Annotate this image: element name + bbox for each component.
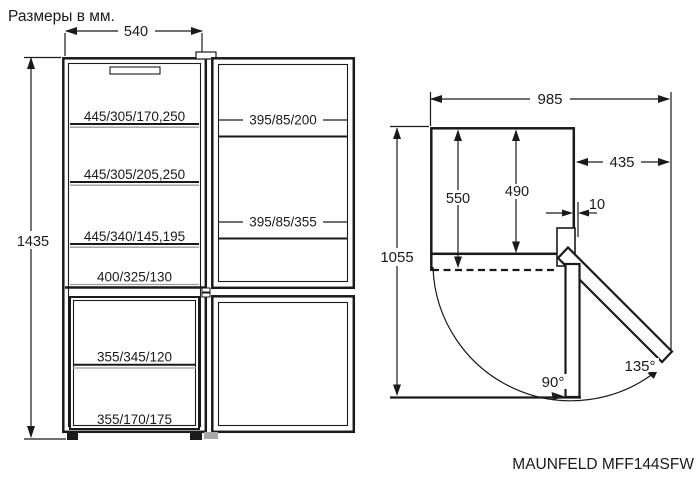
arrowhead-left — [430, 95, 442, 103]
page-title: Размеры в мм. — [8, 8, 115, 25]
front-view-diagram: 540 1435 445/305/170,250 — [11, 22, 354, 440]
fridge-cabinet: 445/305/170,250 445/305/205,250 445/340/… — [63, 52, 216, 440]
arrowhead-up — [27, 57, 35, 69]
door-foot — [204, 432, 218, 439]
freezer-shelf-label: 355/170/175 — [97, 412, 172, 427]
middle-hinge — [202, 293, 210, 297]
angle-90-label: 90° — [542, 374, 565, 391]
arrowhead-right — [658, 158, 670, 166]
arrowhead-right — [658, 95, 670, 103]
dimension-depth-1055: 1055 — [374, 127, 429, 397]
arrowhead-left — [578, 210, 589, 217]
fridge-door-liner — [219, 65, 348, 282]
shelf-size-label: 445/305/170,250 — [84, 109, 185, 124]
door-shelf-label: 395/85/200 — [249, 113, 317, 128]
angle-135-label: 135° — [624, 358, 655, 375]
arrowhead-down — [393, 385, 401, 397]
dimension-clearance-435: 435 — [576, 153, 670, 171]
arrowhead-up — [393, 128, 401, 140]
diagram-canvas: Размеры в мм. 540 1435 — [0, 0, 700, 477]
arrowhead-down — [27, 426, 35, 438]
height-label: 1435 — [17, 234, 49, 250]
lamp-housing — [110, 67, 160, 74]
clearance-label: 435 — [609, 154, 634, 171]
freezer-shelf-label: 355/345/120 — [97, 350, 172, 365]
foot-right — [190, 432, 202, 440]
shelf-size-label: 400/325/130 — [97, 270, 172, 285]
total-width-label: 985 — [537, 91, 562, 108]
door-open-90 — [566, 264, 580, 397]
arrowhead-left — [576, 158, 588, 166]
gap-label: 10 — [589, 197, 605, 213]
width-label: 540 — [124, 24, 148, 40]
arrowhead-right — [191, 27, 203, 35]
door-shelf-label: 395/85/355 — [249, 215, 317, 230]
foot-left — [67, 432, 78, 440]
dimension-drawing-page: Размеры в мм. 540 1435 — [0, 0, 700, 477]
freezer-door-liner — [219, 303, 348, 426]
dimension-height-1435: 1435 — [11, 57, 66, 439]
depth-open-label: 1055 — [380, 249, 413, 266]
model-name: MAUNFELD MFF144SFW — [512, 456, 694, 473]
case-depth-label: 490 — [505, 184, 529, 200]
shelf-size-label: 445/340/145,195 — [84, 229, 185, 244]
arc-arrowhead-90 — [552, 392, 565, 401]
top-view-diagram: 985 435 1055 — [374, 90, 672, 401]
arrowhead-left — [65, 27, 77, 35]
door-panels: 395/85/200 395/85/355 — [204, 58, 354, 439]
middle-hinge — [202, 288, 210, 292]
dimension-width-540: 540 — [65, 22, 203, 56]
shelf-size-label: 445/305/205,250 — [84, 167, 185, 182]
depth-with-door-label: 550 — [446, 191, 470, 207]
arrowhead-down — [454, 257, 462, 269]
